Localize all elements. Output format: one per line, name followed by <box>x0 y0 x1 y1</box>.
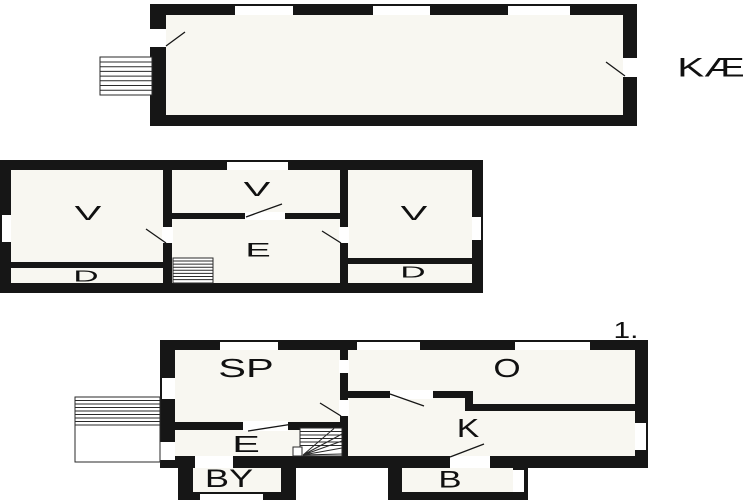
door-opening <box>390 390 433 399</box>
door-opening <box>339 227 349 243</box>
window <box>0 215 11 242</box>
window <box>373 4 430 15</box>
window <box>235 4 293 15</box>
basement-label: KÆ <box>677 53 744 83</box>
wall-segment <box>340 170 348 227</box>
door-opening <box>339 400 349 416</box>
door-opening <box>623 58 637 77</box>
wall-segment <box>163 170 172 227</box>
wall-segment <box>233 456 450 468</box>
wall-segment <box>465 391 473 411</box>
room-label-e: E <box>232 432 260 457</box>
floor-plan-canvas: KÆ <box>0 0 750 500</box>
room-label-d-left: D <box>73 267 98 285</box>
room-label-v-right: V <box>401 202 428 225</box>
basement-plan: KÆ <box>100 4 745 126</box>
wall-segment <box>340 243 348 283</box>
wall-segment <box>285 213 340 219</box>
room-label-d-right: D <box>400 263 425 281</box>
window <box>357 340 420 350</box>
window <box>635 423 648 450</box>
interior-stairs <box>173 258 213 283</box>
wall-segment <box>348 391 390 398</box>
room-label-sp: SP <box>218 355 273 383</box>
room-label-k: K <box>457 415 480 443</box>
room-label-b: B <box>438 467 461 493</box>
window <box>160 378 175 399</box>
floor-label-first: 1. <box>614 317 639 343</box>
wall-segment <box>340 373 348 400</box>
window <box>513 470 526 492</box>
room-label-o: O <box>493 354 520 383</box>
window <box>220 340 278 350</box>
winder-stairs <box>293 428 342 456</box>
room-label-e: E <box>245 240 270 261</box>
room-label-by: BY <box>205 464 254 492</box>
wall-segment <box>163 243 172 283</box>
window <box>515 340 590 350</box>
window <box>227 160 288 170</box>
wall-segment <box>473 404 635 411</box>
room-label-v-mid: V <box>244 178 271 201</box>
wall-segment <box>340 350 348 360</box>
window <box>472 217 483 240</box>
exterior-stairs <box>75 397 160 462</box>
door-opening <box>150 29 166 47</box>
room-label-v-left: V <box>75 202 102 225</box>
door-opening <box>160 442 175 460</box>
exterior-stairs <box>100 57 152 95</box>
ground-plan: V V V E D D <box>0 160 483 293</box>
door-opening <box>339 360 349 373</box>
first-floor-plan: 1. SP O E K BY B <box>75 317 648 500</box>
basement-floor <box>152 6 633 123</box>
wall-segment <box>175 422 243 430</box>
wall-segment <box>172 213 245 219</box>
door-opening <box>245 212 285 220</box>
wall-segment <box>150 115 637 126</box>
window <box>508 4 570 15</box>
wall-segment <box>388 492 528 500</box>
window <box>200 494 263 500</box>
